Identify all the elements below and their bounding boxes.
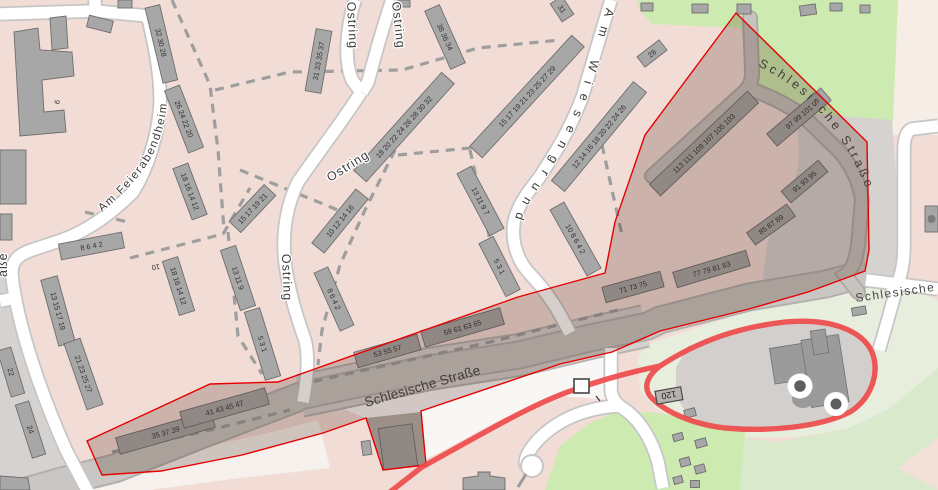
svg-text:Ostring: Ostring — [344, 1, 360, 49]
svg-text:Ostring: Ostring — [279, 254, 295, 302]
svg-text:aße: aße — [0, 252, 10, 277]
svg-text:10: 10 — [151, 262, 161, 272]
